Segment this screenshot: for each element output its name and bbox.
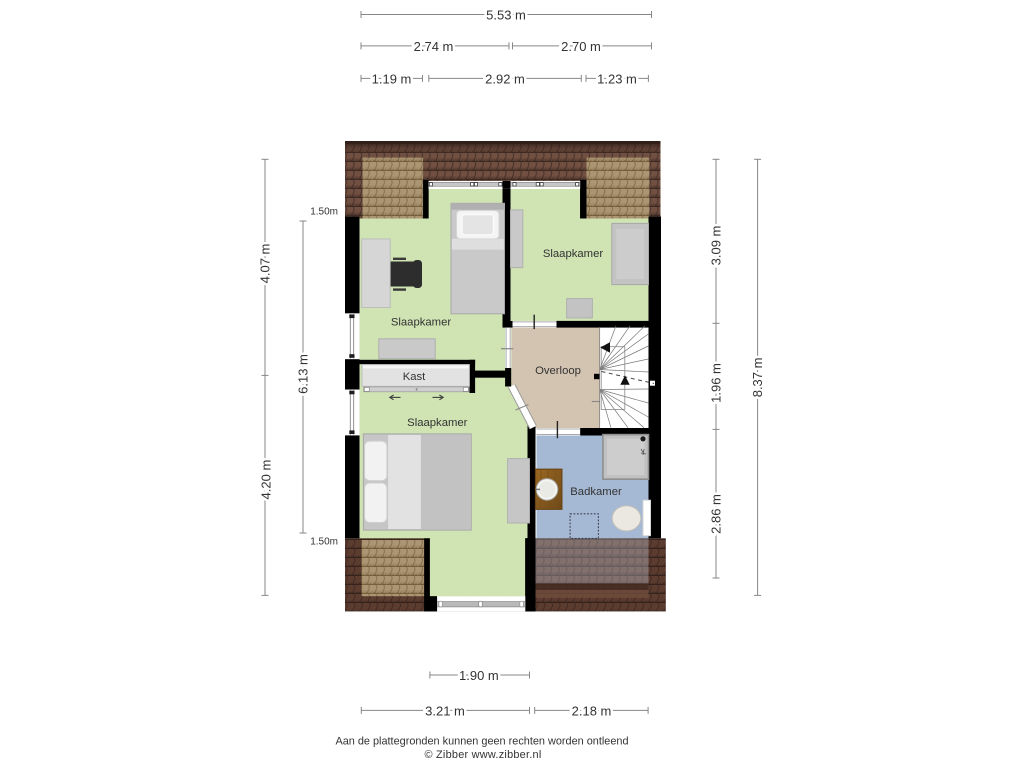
svg-text:© Zibber www.zibber.nl: © Zibber www.zibber.nl — [424, 749, 541, 761]
svg-text:2.92 m: 2.92 m — [485, 71, 525, 86]
svg-text:2.70 m: 2.70 m — [561, 39, 601, 54]
svg-text:1.23 m: 1.23 m — [597, 71, 637, 86]
svg-text:2.86 m: 2.86 m — [709, 494, 724, 534]
svg-text:1.50m: 1.50m — [310, 537, 338, 548]
svg-text:Slaapkamer: Slaapkamer — [543, 248, 604, 260]
svg-text:Slaapkamer: Slaapkamer — [391, 317, 452, 329]
svg-text:6.13 m: 6.13 m — [296, 354, 311, 394]
svg-text:8.37 m: 8.37 m — [750, 358, 765, 398]
svg-text:1.96 m: 1.96 m — [709, 363, 724, 403]
svg-text:Badkamer: Badkamer — [570, 486, 622, 498]
svg-text:3.09 m: 3.09 m — [709, 226, 724, 266]
svg-text:Aan de plattegronden kunnen ge: Aan de plattegronden kunnen geen rechten… — [335, 736, 628, 748]
svg-text:3.21 m: 3.21 m — [425, 703, 465, 718]
svg-text:Kast: Kast — [403, 371, 426, 383]
svg-text:1.90 m: 1.90 m — [459, 668, 499, 683]
svg-text:2.18 m: 2.18 m — [572, 703, 612, 718]
svg-text:4.07 m: 4.07 m — [258, 244, 273, 284]
svg-text:1.19 m: 1.19 m — [372, 71, 412, 86]
svg-text:Overloop: Overloop — [535, 365, 581, 377]
svg-text:5.53 m: 5.53 m — [486, 8, 526, 23]
svg-text:4.20 m: 4.20 m — [259, 460, 274, 500]
svg-text:1.50m: 1.50m — [310, 207, 338, 218]
svg-text:2.74 m: 2.74 m — [414, 39, 454, 54]
svg-text:Slaapkamer: Slaapkamer — [407, 417, 468, 429]
